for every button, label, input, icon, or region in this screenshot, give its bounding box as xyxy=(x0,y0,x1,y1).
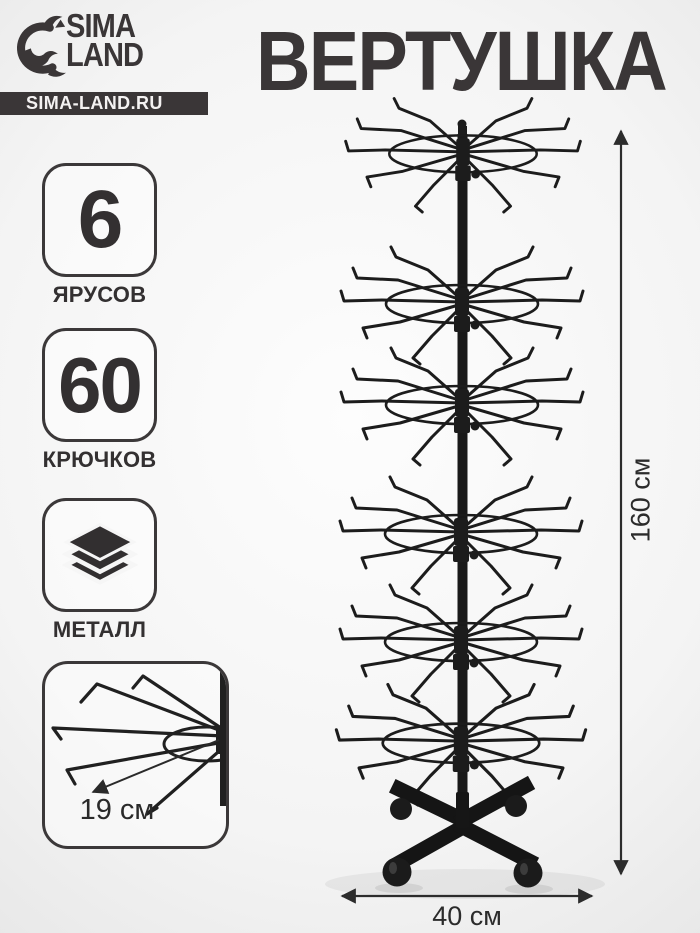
height-dimension-label: 160 см xyxy=(626,458,657,543)
caster-wheel xyxy=(390,798,412,820)
product-card: SIMA LAND SIMA-LAND.RU ВЕРТУШКА 6 ЯРУСОВ… xyxy=(0,0,700,933)
caster-wheel xyxy=(505,795,527,817)
caster-wheel xyxy=(514,859,543,888)
width-dimension-label: 40 см xyxy=(432,901,502,932)
spinner-stand-illustration xyxy=(0,0,700,933)
caster-wheel xyxy=(383,858,412,887)
